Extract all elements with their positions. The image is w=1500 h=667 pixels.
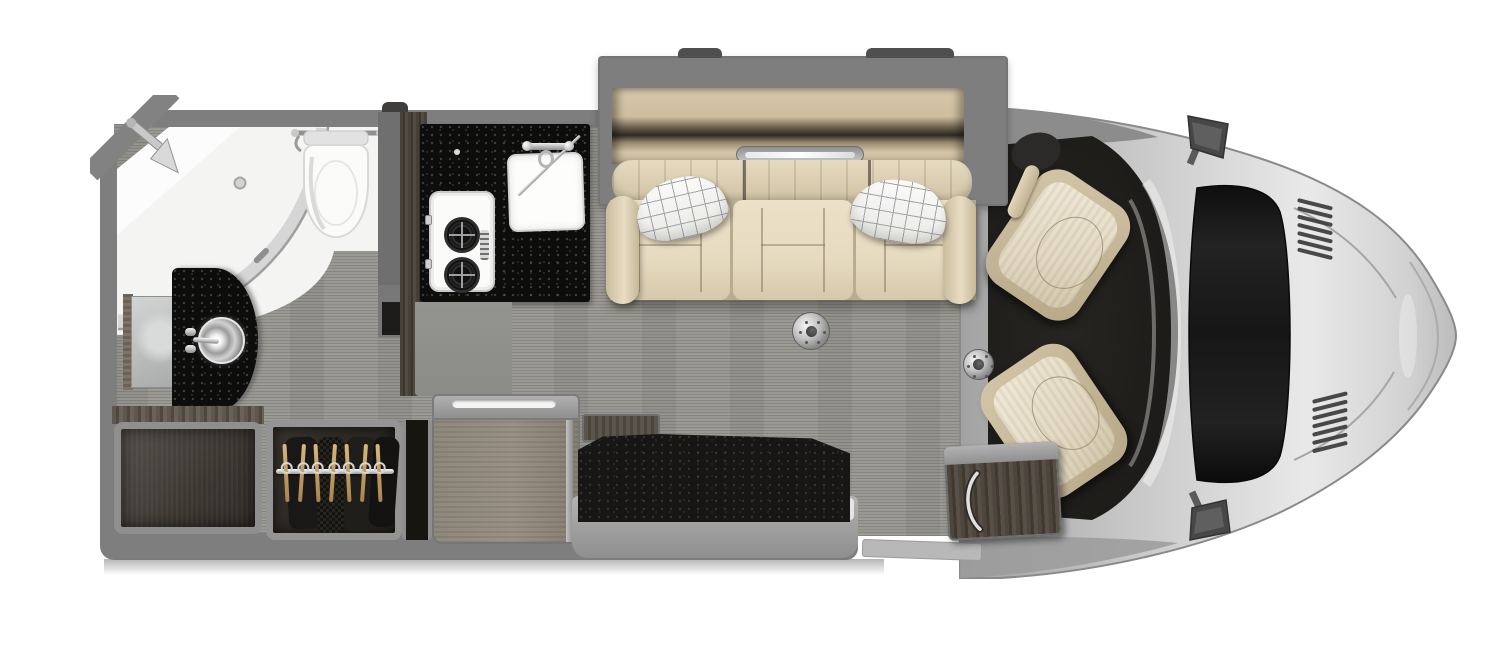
sofa-armrest-right	[943, 196, 976, 304]
body-skirt-shadow	[104, 559, 884, 575]
cabinet-handle-icon	[955, 469, 988, 534]
narrow-cabinet	[402, 420, 432, 540]
shower-drain	[235, 178, 246, 189]
dresser-top-slot	[452, 399, 556, 408]
hanging-garment	[368, 436, 400, 528]
slide-out-marker	[866, 48, 954, 58]
burner-front	[444, 257, 480, 293]
slide-out-marker	[678, 48, 722, 58]
cushion-seam	[761, 244, 825, 246]
rv-floorplan	[0, 0, 1500, 667]
cooktop-hinge	[425, 215, 432, 225]
cushion-seam	[638, 244, 702, 246]
hood	[1189, 186, 1290, 483]
galley-faucet-neck	[538, 150, 554, 168]
galley-base-platform	[415, 302, 512, 396]
counter-highlight-dot	[454, 149, 460, 155]
mount-bolts	[811, 331, 814, 334]
cab-and-front-body	[940, 0, 1500, 667]
burner-rear	[444, 217, 480, 253]
vanity-faucet-handle	[185, 345, 196, 353]
sofa-cushion-center	[733, 200, 853, 300]
sofa-armrest-left	[606, 196, 639, 304]
cushion-seam	[884, 244, 948, 246]
table-floor-mount-front	[963, 349, 994, 380]
open-storage-cubby	[114, 422, 262, 534]
toilet-tank	[304, 131, 368, 145]
vanity-faucet-handle	[185, 328, 196, 336]
wet-bath	[90, 95, 402, 457]
entry-door-mat	[578, 434, 850, 522]
two-burner-cooktop	[429, 191, 495, 292]
mount-bolts	[979, 365, 982, 368]
exterior-step-panel	[862, 539, 983, 561]
cooktop-hinge	[425, 259, 432, 269]
cooktop-grate	[480, 230, 489, 260]
front-console-cabinet	[944, 441, 1063, 541]
galley-faucet-handle-bar	[528, 143, 568, 150]
table-floor-mount-rear	[792, 312, 830, 350]
